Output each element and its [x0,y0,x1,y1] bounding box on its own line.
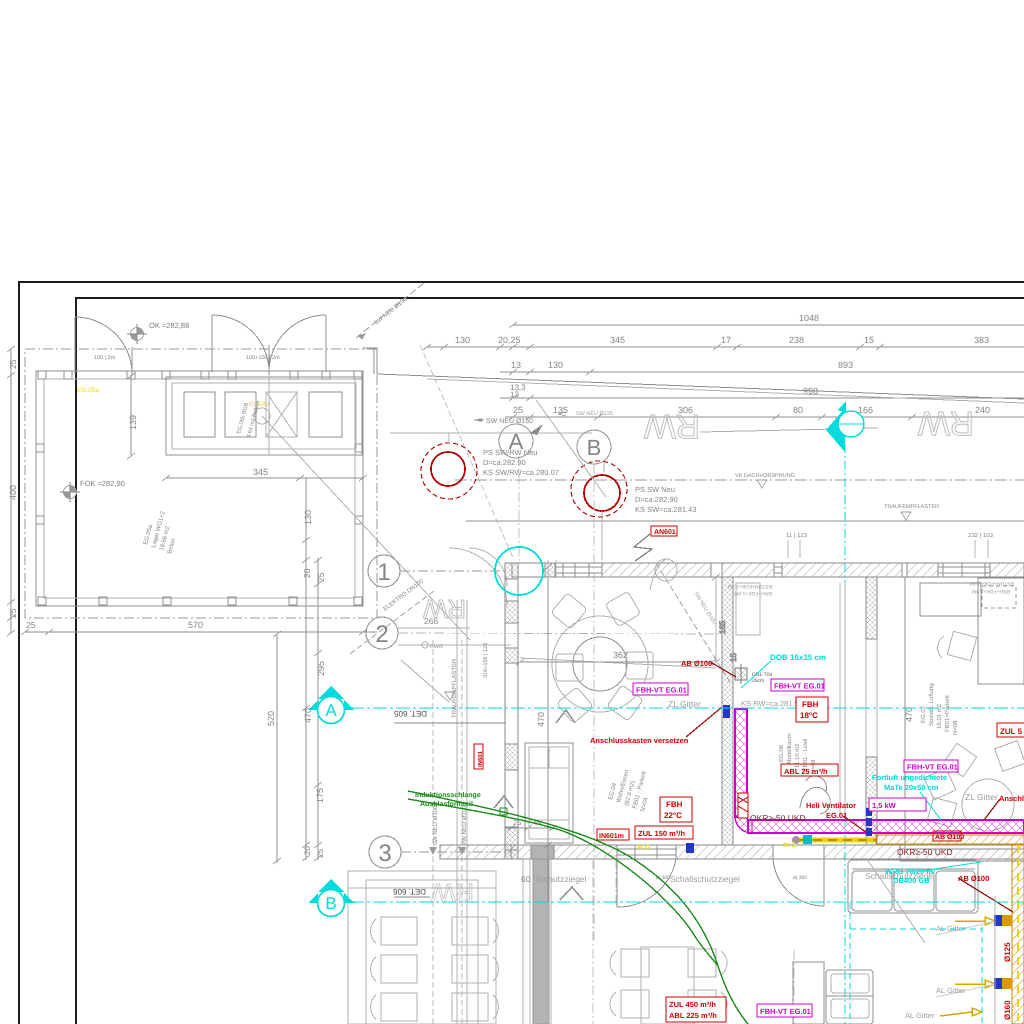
svg-text:ABL 225 m³/h: ABL 225 m³/h [669,1011,717,1020]
svg-text:KS RW=ca.281.51: KS RW=ca.281.51 [741,699,803,708]
svg-text:Abstellraum: Abstellraum [786,733,793,765]
svg-text:RW: RW [918,404,974,442]
svg-text:ZUL 450 m³/h: ZUL 450 m³/h [669,1000,716,1009]
svg-text:OKR≥-50 UKD: OKR≥-50 UKD [750,813,806,823]
svg-text:DB400 GB: DB400 GB [893,876,930,885]
svg-text:Schallschutzziegel: Schallschutzziegel [670,874,740,884]
svg-text:TRAUFENPFLASTER: TRAUFENPFLASTER [451,658,458,718]
svg-text:15: 15 [864,335,874,345]
svg-text:470: 470 [536,712,546,727]
svg-text:60: 60 [521,874,531,884]
svg-text:OKR≥-50 UKD: OKR≥-50 UKD [897,847,953,857]
svg-text:Sozialk. Lüftung: Sozialk. Lüftung [928,683,935,726]
svg-text:ZL Gitter: ZL Gitter [965,792,998,802]
svg-text:N=08: N=08 [952,720,959,735]
svg-text:1,5 kW: 1,5 kW [872,801,897,810]
svg-text:FBH-VT EG.01: FBH-VT EG.01 [760,1007,811,1016]
svg-text:B: B [325,894,336,913]
svg-text:A: A [325,701,337,720]
svg-text:EG.05a: EG.05a [77,387,99,394]
svg-text:18°C: 18°C [800,711,818,720]
svg-text:166: 166 [858,405,873,415]
svg-text:165: 165 [718,620,727,634]
svg-text:IN601m: IN601m [599,833,624,840]
svg-text:1: 1 [377,559,390,586]
svg-text:RW: RW [431,878,474,908]
svg-text:345: 345 [610,335,625,345]
svg-text:KS SW=ca.281.43: KS SW=ca.281.43 [635,505,697,514]
svg-text:232 | 103: 232 | 103 [968,532,994,539]
svg-text:ABL 25 m³/h: ABL 25 m³/h [784,767,828,776]
svg-text:EG.06: EG.06 [778,744,785,762]
svg-text:IK G: IK G [637,844,650,851]
svg-text:AB Ø100: AB Ø100 [935,833,964,841]
svg-text:130: 130 [303,510,313,525]
svg-text:25cm: 25cm [752,678,764,684]
svg-text:25: 25 [316,849,325,858]
svg-text:RW NEU Ø100: RW NEU Ø100 [461,805,468,846]
svg-text:Anschlusskasten versetzen: Anschlusskasten versetzen [590,736,689,745]
svg-text:16.01 m2: 16.01 m2 [936,703,943,729]
svg-text:TRAUFEMPFLASTER: TRAUFEMPFLASTER [884,504,939,510]
svg-text:SW NEU Ø100: SW NEU Ø100 [432,805,439,846]
svg-text:IK G: IK G [783,842,796,849]
svg-text:FB01+Parkett: FB01+Parkett [944,695,951,732]
svg-text:Induktionsschlange: Induktionsschlange [415,791,481,799]
svg-text:SW NEU Ø150: SW NEU Ø150 [486,417,533,425]
svg-text:ø| 300: ø| 300 [793,875,807,881]
svg-text:Ausblasformteil: Ausblasformteil [420,800,473,808]
svg-text:25: 25 [8,608,18,618]
svg-text:EG.01: EG.01 [826,811,847,820]
svg-text:RW: RW [644,407,700,445]
svg-text:D=ca.282.90: D=ca.282.90 [635,495,678,504]
svg-text:KS SW/RW=ca.280.07: KS SW/RW=ca.280.07 [483,468,559,477]
svg-text:OK =282,88: OK =282,88 [149,321,189,330]
svg-text:17: 17 [721,335,731,345]
svg-text:1048: 1048 [799,313,819,323]
svg-text:139: 139 [128,415,138,430]
svg-text:AL Gitter: AL Gitter [905,1011,935,1020]
svg-text:IN601: IN601 [477,750,484,767]
svg-text:13: 13 [511,360,521,370]
svg-text:240: 240 [975,405,990,415]
svg-text:470: 470 [904,707,914,722]
svg-text:25: 25 [26,620,36,630]
svg-text:11 | 123: 11 | 123 [786,532,808,539]
svg-text:BSTUN+FOK+2,2M: BSTUN+FOK+2,2M [728,583,772,589]
svg-text:Ø160: Ø160 [1003,1000,1012,1020]
svg-text:295: 295 [316,661,326,676]
svg-text:FBH-VT EG.01: FBH-VT EG.01 [907,763,958,772]
svg-text:Fortluft ungedichtete: Fortluft ungedichtete [872,773,947,782]
svg-text:FBH-VT EG.01: FBH-VT EG.01 [636,686,687,695]
svg-text:llschutzziegel: llschutzziegel [536,874,587,884]
svg-text:ZUL 150 m³/h: ZUL 150 m³/h [638,829,685,838]
svg-text:20,25: 20,25 [498,335,521,345]
svg-text:Ø125: Ø125 [1003,942,1012,962]
svg-text:100 | 2m: 100 | 2m [94,355,116,361]
svg-text:3: 3 [378,840,391,867]
svg-text:175: 175 [315,788,325,803]
svg-text:20: 20 [303,846,312,855]
svg-text:25: 25 [316,572,326,582]
svg-text:FOK =282,90: FOK =282,90 [80,479,125,488]
svg-text:AB Ø100: AB Ø100 [958,874,989,883]
svg-text:520: 520 [266,711,276,726]
svg-text:25: 25 [8,359,18,369]
svg-text:DET. 606: DET. 606 [393,887,426,896]
svg-text:2: 2 [375,621,388,648]
svg-text:PS SW Neu: PS SW Neu [635,485,675,494]
svg-text:FBH: FBH [666,800,683,809]
svg-text:238: 238 [789,335,804,345]
svg-text:FBH: FBH [802,700,819,709]
svg-text:AN601: AN601 [654,529,676,536]
svg-text:25: 25 [513,405,523,415]
svg-text:FBH-VT EG.01: FBH-VT EG.01 [774,682,825,691]
svg-text:Heli Ventilator: Heli Ventilator [806,801,856,810]
svg-text:VK DACHVORSPRUNG: VK DACHVORSPRUNG [735,473,795,479]
svg-text:AL Gitter: AL Gitter [936,986,966,995]
svg-text:400: 400 [8,485,18,500]
svg-text:22°C: 22°C [664,811,682,820]
svg-text:MaTe 20x50 cm: MaTe 20x50 cm [884,783,939,792]
svg-text:A: A [509,429,524,454]
svg-text:13: 13 [510,390,519,399]
svg-text:130: 130 [548,360,563,370]
svg-text:DOB 15x15 cm: DOB 15x15 cm [770,653,826,662]
svg-text:130: 130 [455,335,470,345]
svg-text:WRG 70/20 m³: WRG 70/20 m³ [885,867,936,876]
svg-text:DET. 605: DET. 605 [394,709,427,718]
svg-text:B: B [587,435,602,460]
svg-text:345: 345 [253,467,268,477]
svg-text:15: 15 [729,653,738,662]
svg-text:80: 80 [793,405,803,415]
svg-text:BRH+FOK+1,9M: BRH+FOK+1,9M [734,590,772,596]
svg-text:100+100 | 2m: 100+100 | 2m [246,355,280,361]
svg-text:316+156 | 123: 316+156 | 123 [483,643,489,678]
svg-text:20: 20 [302,568,312,578]
svg-text:570: 570 [188,620,203,630]
svg-text:893: 893 [838,360,853,370]
svg-text:383: 383 [974,335,989,345]
svg-text:RW: RW [423,594,466,624]
svg-text:470: 470 [303,708,313,723]
svg-text:SW NEU Ø125: SW NEU Ø125 [576,411,613,417]
svg-text:Anschl: Anschl [999,794,1024,803]
svg-text:AB Ø100: AB Ø100 [681,659,712,668]
svg-text:ZUL 5: ZUL 5 [1000,727,1023,736]
